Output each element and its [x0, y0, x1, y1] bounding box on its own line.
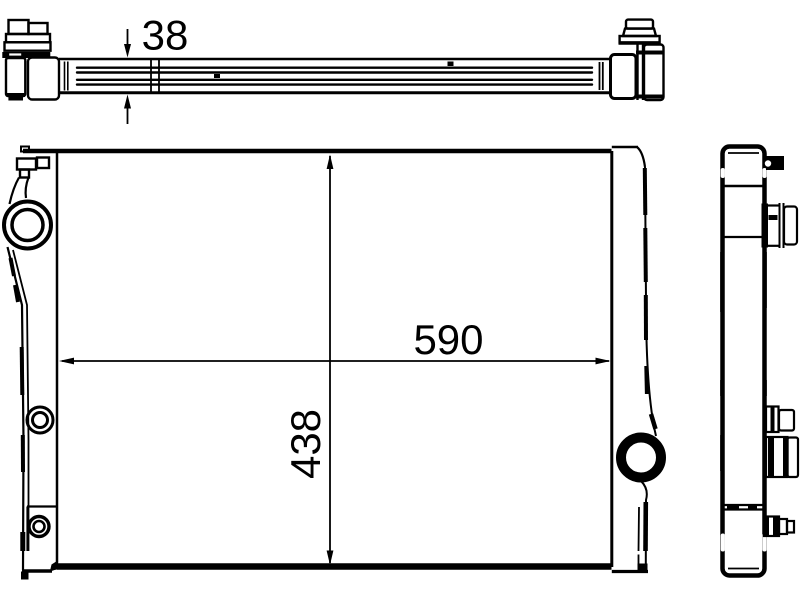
svg-text:590: 590: [413, 316, 483, 363]
svg-text:38: 38: [142, 12, 189, 59]
svg-text:438: 438: [282, 409, 329, 479]
